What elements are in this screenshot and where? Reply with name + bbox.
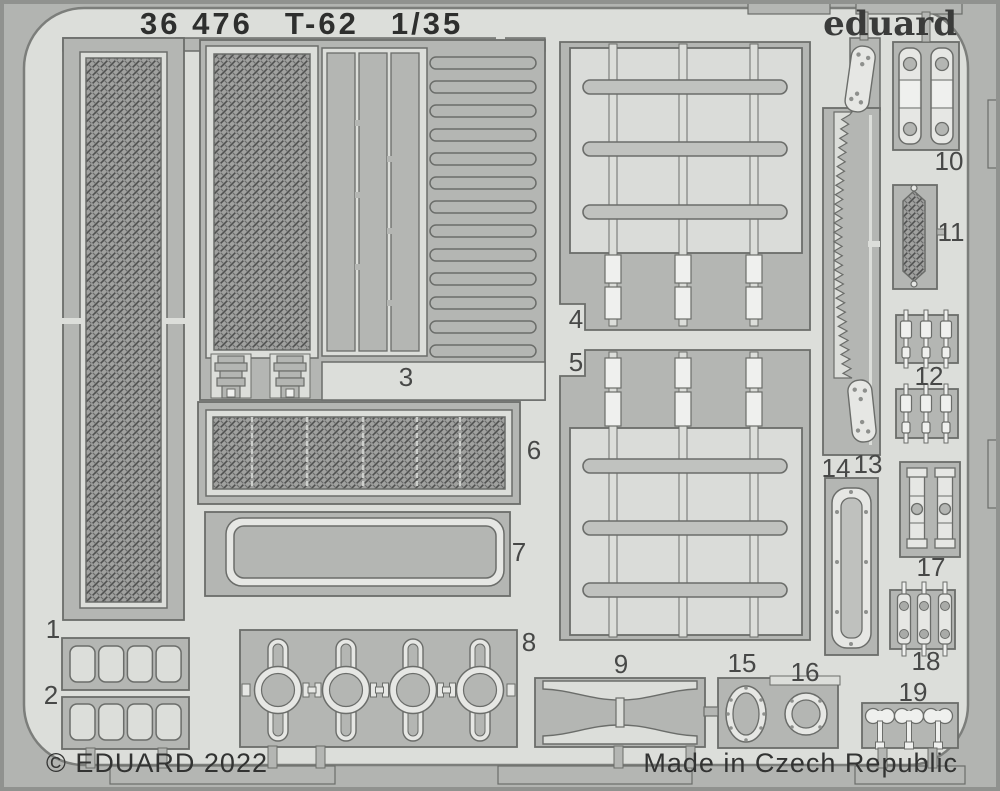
part-9-curved-braces <box>535 678 705 747</box>
part-3-grille-group <box>200 40 545 400</box>
part-label-16: 16 <box>788 658 822 686</box>
part-label-1: 1 <box>36 615 70 643</box>
part-label-15: 15 <box>725 649 759 677</box>
part-label-8: 8 <box>512 628 546 656</box>
part-17-beam-strips <box>900 462 960 557</box>
made-in-text: Made in Czech Republic <box>643 748 958 779</box>
part-7-plain-strip <box>205 512 510 596</box>
part-10-drilled-strips <box>893 42 959 150</box>
part-19-wingnut-shapes <box>862 703 958 749</box>
product-name: T-62 <box>285 6 359 42</box>
pe-fret-artwork <box>0 0 1000 791</box>
part-14-gasket-plate <box>825 478 878 655</box>
part-8-ring-links <box>240 630 517 747</box>
part-4-engine-deck-plate <box>560 42 810 330</box>
part-5-engine-deck-plate <box>560 350 810 640</box>
part-label-9: 9 <box>604 650 638 678</box>
pe-fret-product-image: 36 476 T-62 1/35 eduard 1 2 3 4 5 6 7 8 … <box>0 0 1000 791</box>
scale-label: 1/35 <box>391 6 463 42</box>
part-label-10: 10 <box>932 147 966 175</box>
part-label-6: 6 <box>517 436 551 464</box>
part-label-13: 13 <box>851 450 885 478</box>
part-label-5: 5 <box>559 348 593 376</box>
part-label-2: 2 <box>34 681 68 709</box>
catalog-number: 36 476 <box>140 6 253 42</box>
part-label-19: 19 <box>896 678 930 706</box>
part-18-drilled-strips <box>890 582 955 656</box>
part-label-4: 4 <box>559 305 593 333</box>
part-label-14: 14 <box>819 454 853 482</box>
part-label-11: 11 <box>934 218 968 246</box>
part-label-7: 7 <box>502 538 536 566</box>
part-label-3: 3 <box>389 363 423 391</box>
header-title: 36 476 T-62 1/35 <box>140 6 463 42</box>
part-label-17: 17 <box>914 553 948 581</box>
eduard-logo: eduard <box>823 4 957 44</box>
copyright-text: © EDUARD 2022 <box>46 748 268 779</box>
part-label-12: 12 <box>912 362 946 390</box>
part-15-16-rings <box>704 676 840 748</box>
part-6-mesh-strip <box>198 402 520 504</box>
part-label-18: 18 <box>909 647 943 675</box>
part-1-mesh-strip <box>61 38 186 620</box>
